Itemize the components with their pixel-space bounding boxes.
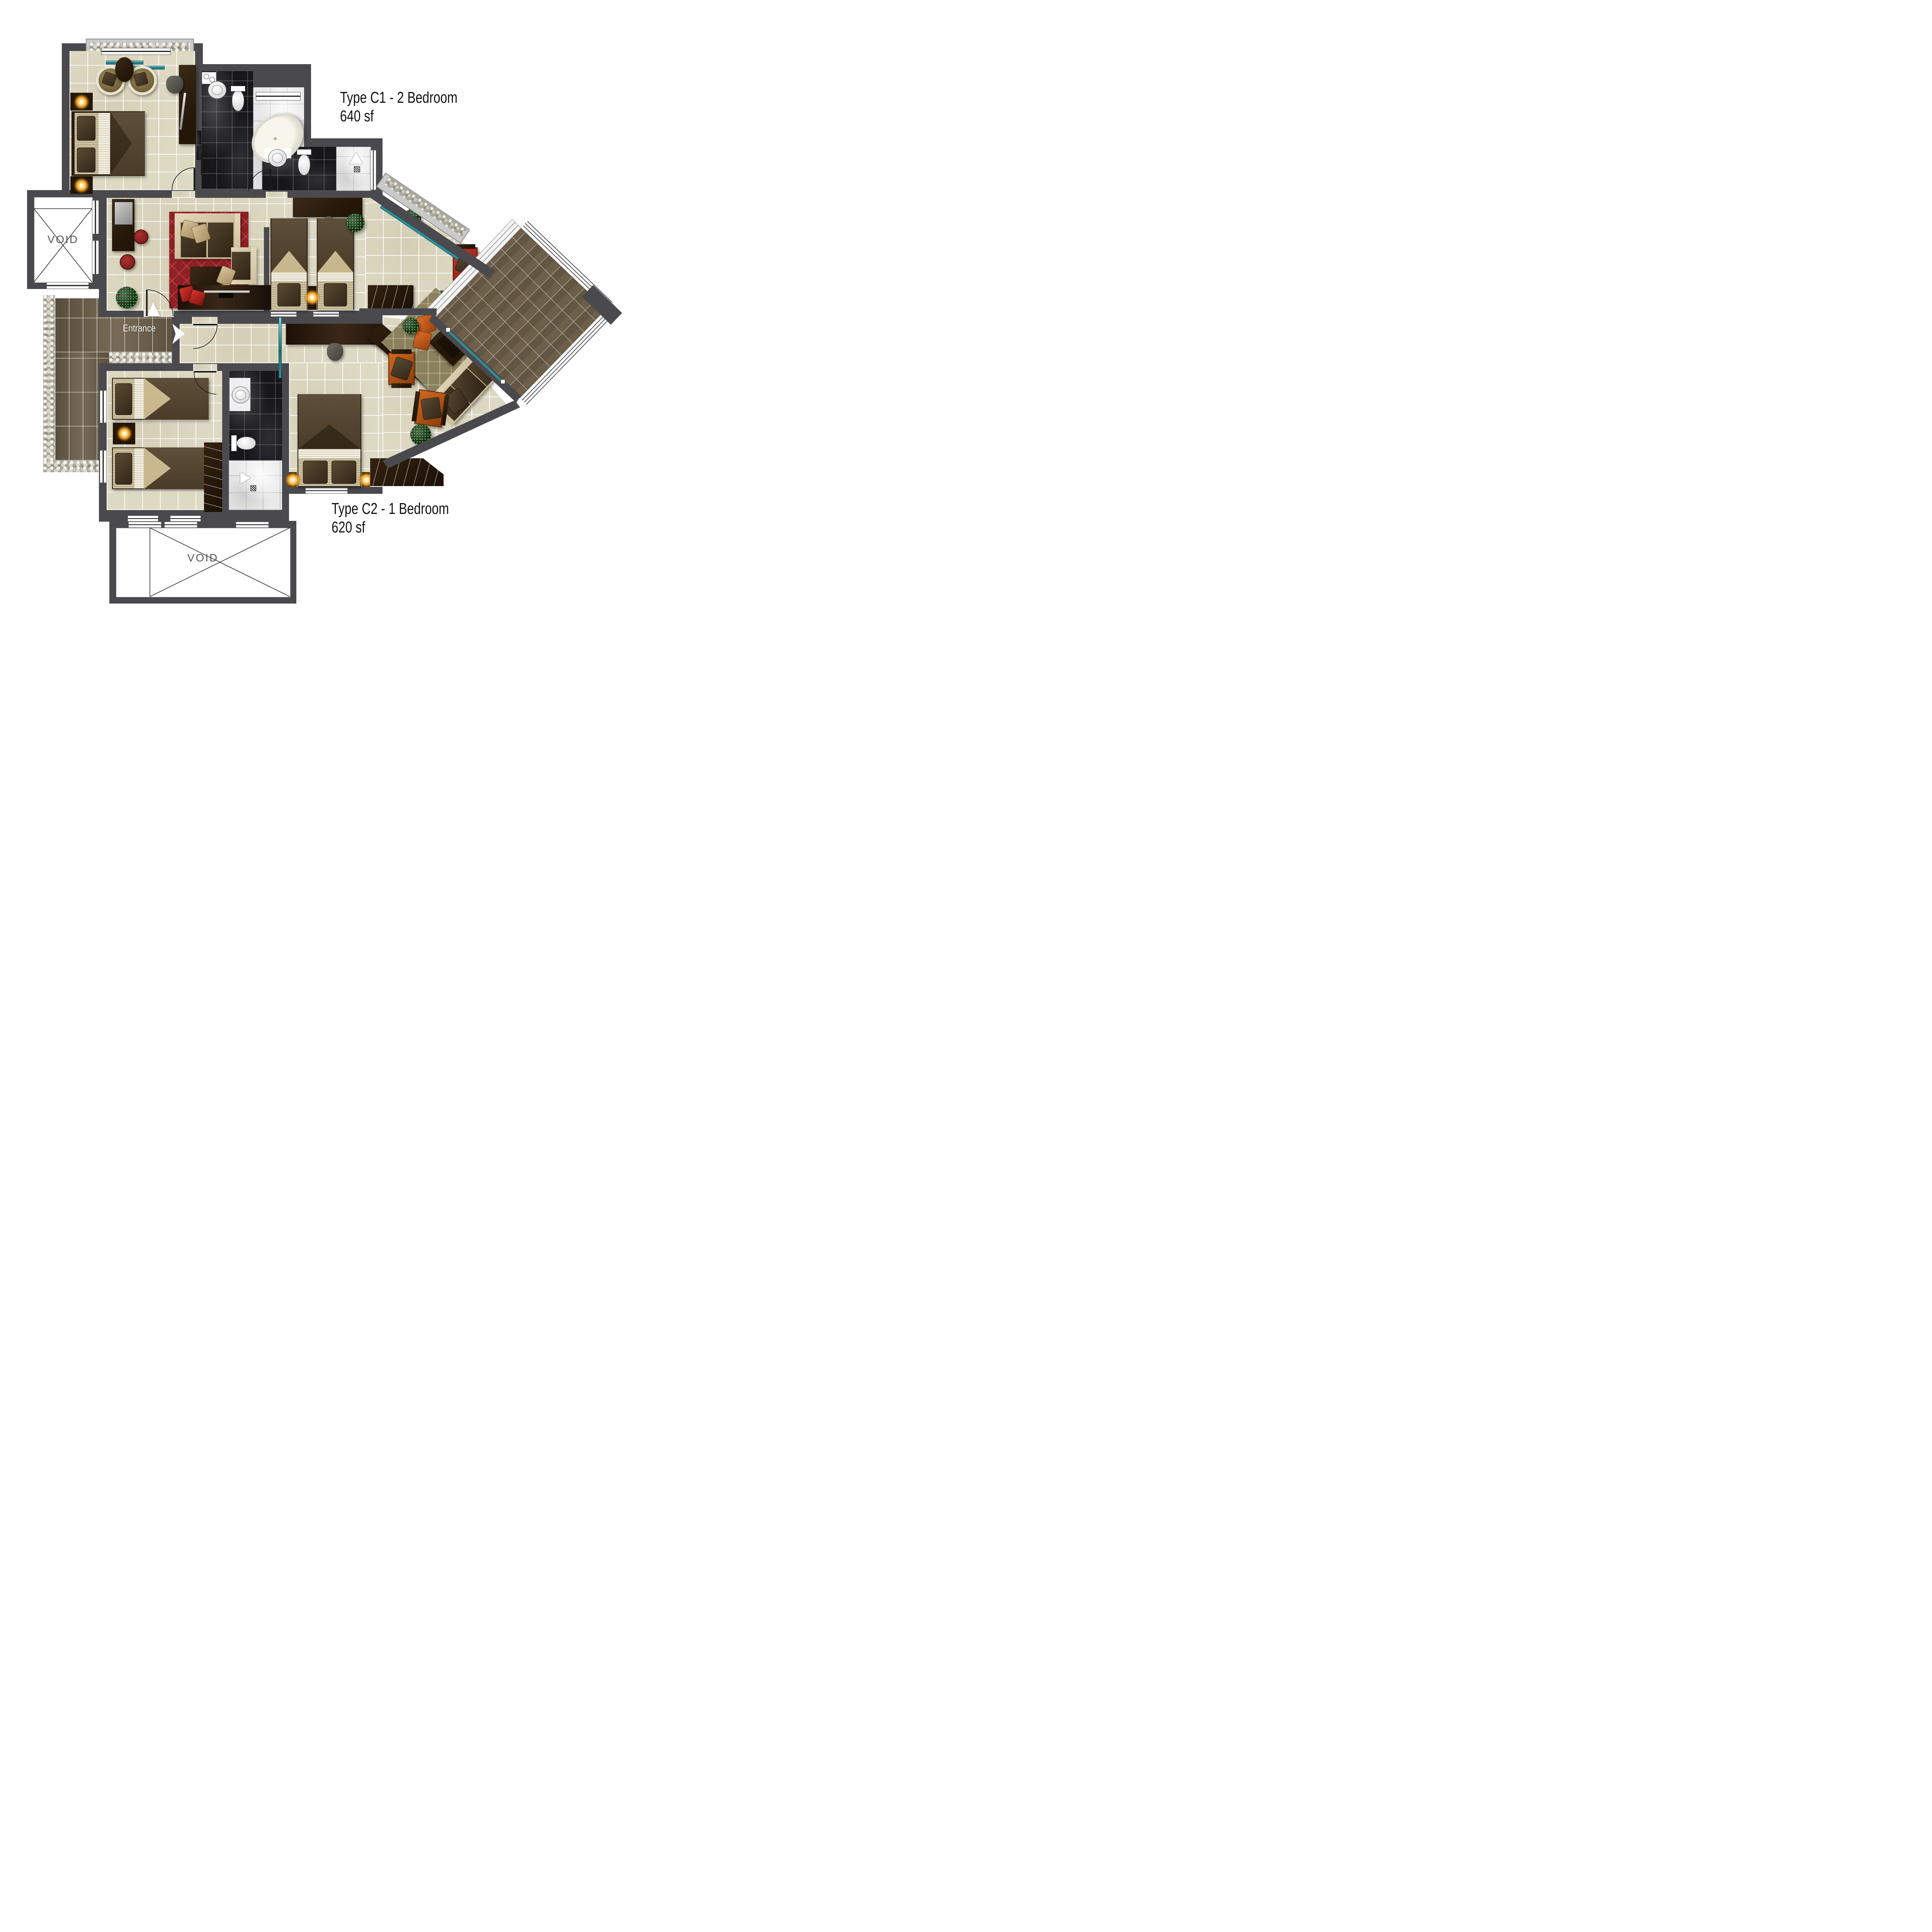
bed-c2-twin-2 — [112, 447, 209, 489]
side-table-wing — [455, 284, 472, 301]
stool-red-1 — [134, 230, 148, 244]
toilet-tank-bath2 — [297, 149, 311, 155]
tv-living-stand — [219, 293, 233, 298]
bed-c2 — [298, 394, 361, 487]
window-void2-top-2 — [164, 522, 197, 528]
window-void2-top-3 — [236, 522, 269, 528]
desk-chair-master — [166, 76, 183, 94]
window-twin-bottom-1 — [270, 311, 297, 317]
shower-drain-c2 — [250, 485, 256, 491]
plant-living — [116, 287, 138, 308]
window-void1-right-1 — [92, 200, 99, 234]
closet-c2-twin — [204, 442, 222, 512]
window-bath1-bay — [256, 92, 301, 100]
coffee-table-oval — [115, 57, 134, 82]
window-c2-twin-left-1 — [100, 390, 107, 423]
window-bath2-right — [370, 150, 376, 190]
toilet-bath1 — [232, 90, 244, 111]
shower-head-c2 — [240, 472, 250, 484]
door-gap-c2-entry — [192, 317, 218, 324]
sink-bath1 — [208, 81, 226, 99]
window-c2-twin-bottom-1 — [128, 515, 158, 522]
console-dining — [112, 199, 134, 251]
terrace-railing — [522, 221, 612, 405]
door-gap-bath1 — [196, 131, 201, 161]
toilet-bath2 — [298, 155, 310, 175]
door-gap-master — [172, 191, 195, 198]
toilet-tank-bath1 — [231, 86, 245, 92]
window-c2-twin-bottom-2 — [170, 515, 201, 522]
door-gap-bath2 — [266, 192, 287, 198]
plant-c2-bottom — [410, 424, 431, 445]
shower-head-icon — [350, 152, 363, 164]
bed-twin-1 — [270, 218, 308, 310]
plant-wing-top — [404, 209, 421, 226]
shower-drain — [354, 166, 360, 172]
console-master — [179, 65, 196, 144]
window-twin-bottom-2 — [313, 311, 339, 317]
window-c2-bottom — [305, 488, 348, 494]
toilet-c2 — [236, 437, 256, 450]
lamp-master-1 — [73, 94, 90, 111]
wardrobe-wing — [368, 285, 413, 308]
window-c2-twin-left-2 — [100, 450, 107, 483]
void1-label: VOID — [34, 233, 92, 246]
stool-red-2 — [120, 254, 135, 270]
armchair-orange-2 — [414, 389, 447, 427]
sofa-living — [175, 213, 240, 259]
desk-chair-c2 — [327, 343, 343, 361]
c2-title-line: Type C2 - 1 Bedroom — [332, 499, 449, 518]
c1-area-line: 640 sf — [340, 107, 457, 125]
entrance-arrow-up — [147, 302, 160, 316]
armchair-living — [231, 247, 257, 284]
bed-twin-2 — [317, 218, 354, 310]
tv-console-c2 — [286, 324, 383, 345]
void2-label: VOID — [116, 552, 290, 564]
sink-c2-bath — [232, 386, 250, 403]
bed-c2-twin-1 — [112, 378, 209, 420]
window-void1-bottom — [46, 282, 89, 289]
entrance-label: Entrance — [123, 323, 156, 334]
window-master-top — [101, 48, 171, 55]
window-void2-top-1 — [128, 522, 162, 528]
c1-title: Type C1 - 2 Bedroom 640 sf — [340, 88, 457, 126]
c2-area-line: 620 sf — [332, 518, 449, 536]
terrace-tip-wall — [582, 285, 622, 325]
floor-plan-sheet: Entrance — [0, 0, 646, 612]
plant-twin — [346, 213, 364, 232]
lamp-c2-twin — [116, 425, 133, 442]
wardrobe-c2 — [370, 458, 444, 486]
glass-partition-c2-hall — [279, 318, 281, 378]
sink-bath2 — [268, 149, 287, 167]
lamp-c2-left — [284, 471, 301, 488]
door-gap-c2-twin — [193, 364, 217, 371]
window-void1-right-2 — [92, 240, 99, 274]
toilet-tank-c2 — [231, 435, 237, 451]
lamp-twin — [304, 289, 321, 306]
c2-title: Type C2 - 1 Bedroom 620 sf — [332, 499, 449, 537]
armchair-orange-1 — [388, 352, 415, 385]
armchair-red-wing — [453, 247, 478, 281]
pebble-border-left — [43, 295, 55, 472]
lamp-master-2 — [73, 177, 90, 194]
c1-title-line: Type C1 - 2 Bedroom — [340, 88, 457, 107]
bed-master — [71, 111, 145, 176]
plant-c2-top — [403, 318, 419, 334]
